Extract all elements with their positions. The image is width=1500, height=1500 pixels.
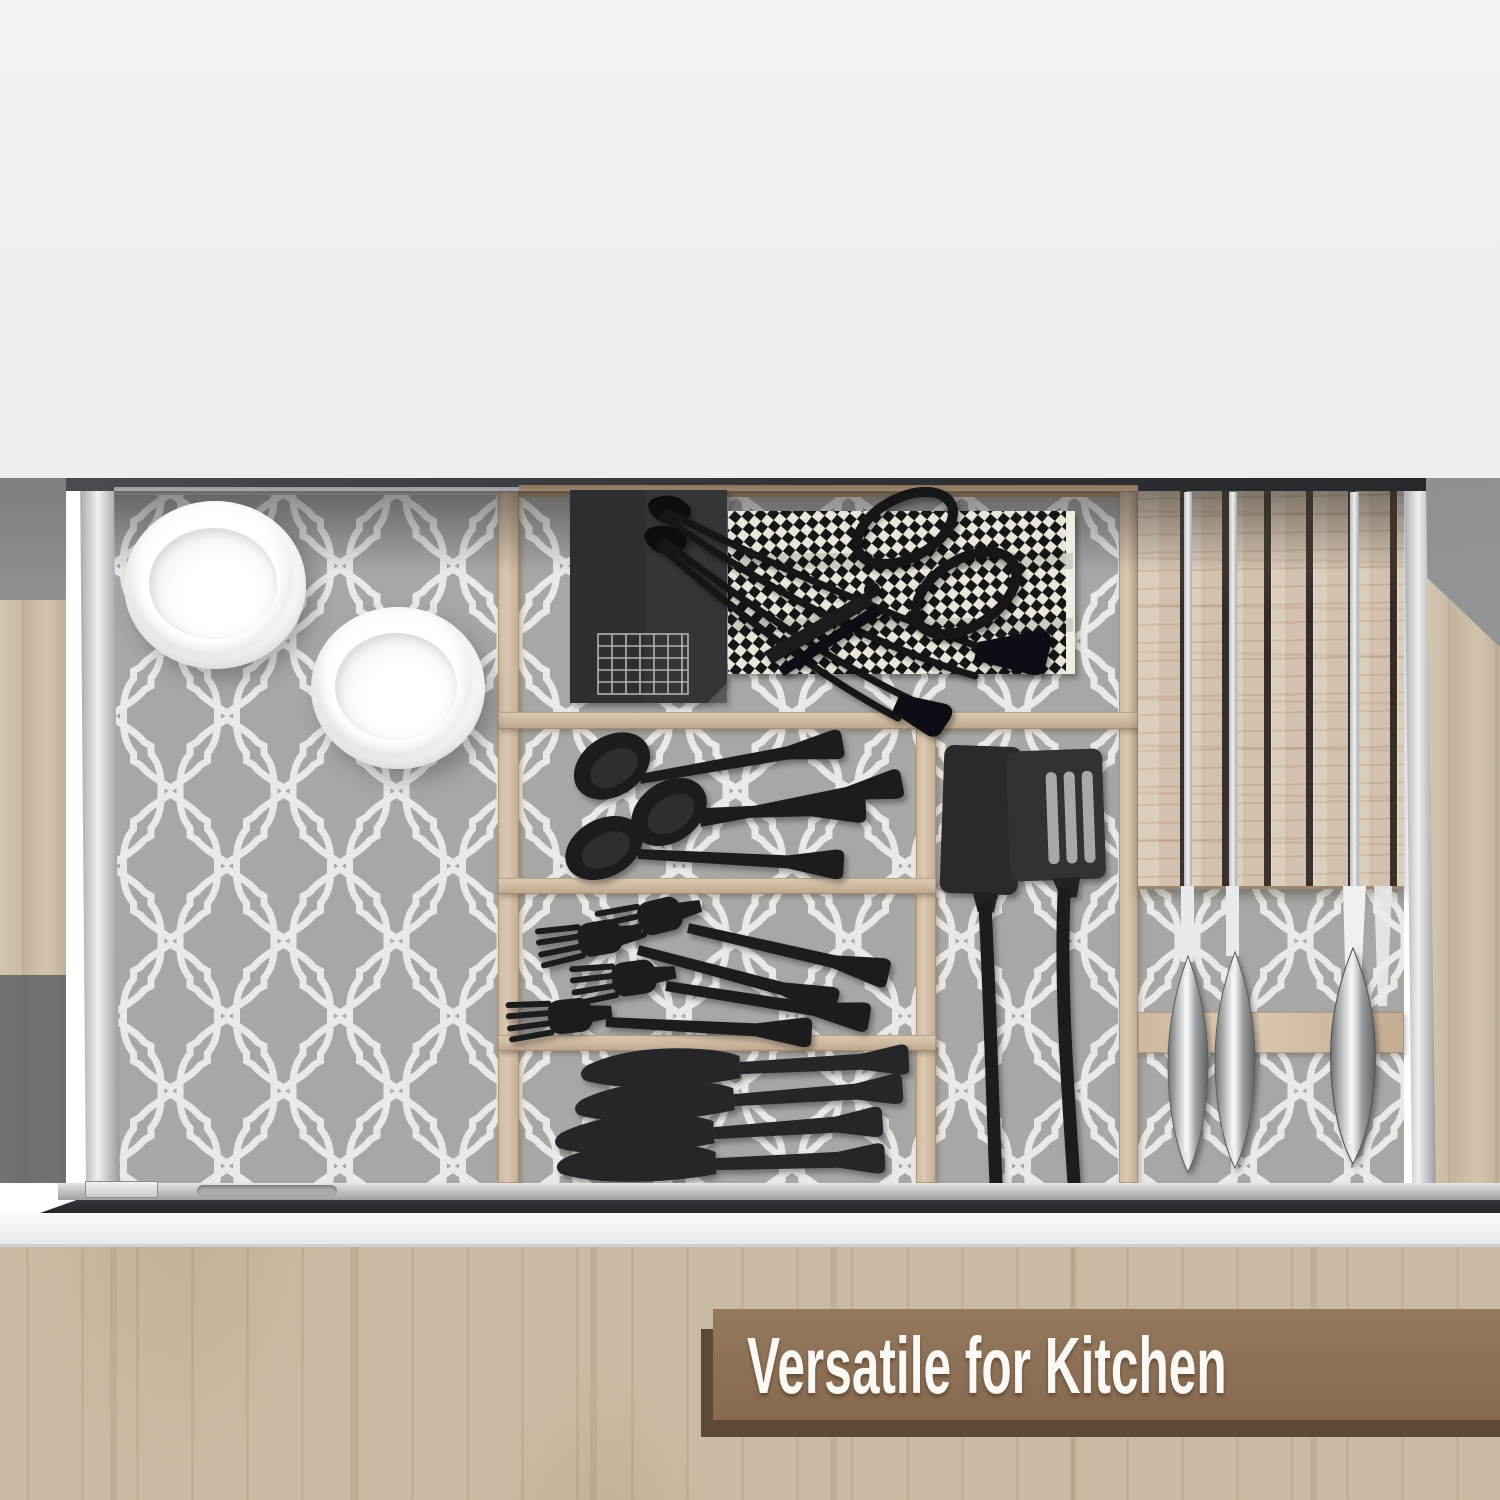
ceramic-bowl: [124, 501, 306, 669]
ceramic-bowl: [311, 607, 485, 769]
drawer-top-shadow: [114, 491, 1404, 573]
drawer-rim-groove: [197, 1185, 337, 1197]
divider-horizontal-top: [498, 712, 1138, 729]
cabinet-left-lower-shadow: [0, 975, 66, 1183]
wall-background: [0, 0, 1500, 478]
knife-holder-strip: [1138, 1012, 1404, 1053]
product-screenshot: Versatile for Kitchen: [0, 0, 1500, 1500]
caption-banner: Versatile for Kitchen: [713, 1309, 1500, 1420]
drawer-gap-shadow: [40, 1200, 1500, 1213]
cabinet-left-opening: [0, 478, 66, 1183]
divider-horizontal-bottom: [498, 1035, 936, 1051]
drawer-slide-latch: [85, 1181, 158, 1198]
divider-horizontal-middle: [498, 878, 936, 894]
divider-vertical-left: [498, 491, 519, 1183]
drawer-front-edge: [0, 1213, 1500, 1244]
cabinet-right-opening: [1426, 478, 1500, 1183]
cabinet-left-shadow: [0, 478, 66, 600]
cabinet-right-shadow: [1426, 478, 1500, 1183]
divider-vertical-right: [1119, 491, 1138, 1183]
bowl-interior: [335, 633, 457, 740]
divider-vertical-middle: [916, 713, 936, 1183]
caption-text: Versatile for Kitchen: [747, 1309, 1227, 1420]
bowl-interior: [149, 528, 276, 639]
